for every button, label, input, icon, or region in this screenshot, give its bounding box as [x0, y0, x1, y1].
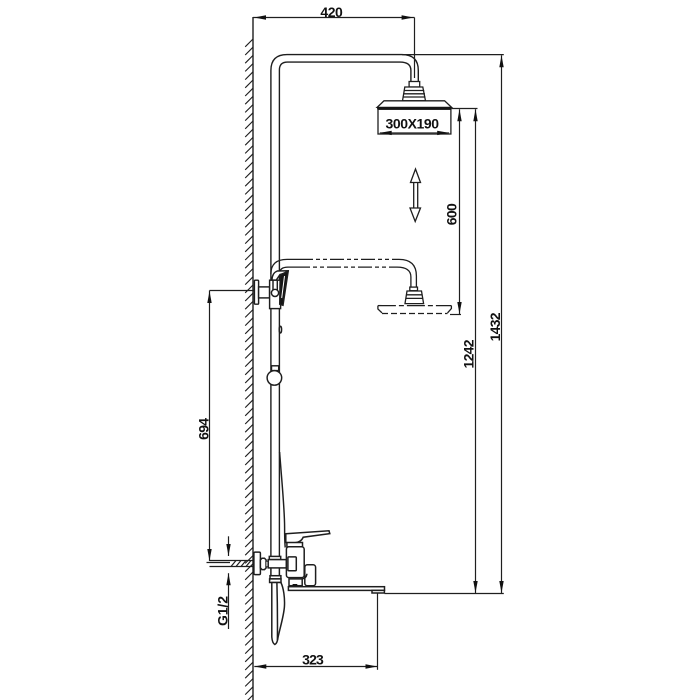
svg-text:323: 323 — [302, 651, 324, 667]
svg-text:600: 600 — [444, 203, 460, 225]
svg-text:420: 420 — [320, 4, 343, 20]
svg-text:1432: 1432 — [487, 312, 503, 341]
svg-text:G1/2: G1/2 — [215, 596, 231, 626]
svg-text:694: 694 — [196, 418, 212, 440]
svg-text:300X190: 300X190 — [386, 115, 440, 131]
svg-text:1242: 1242 — [461, 339, 477, 368]
